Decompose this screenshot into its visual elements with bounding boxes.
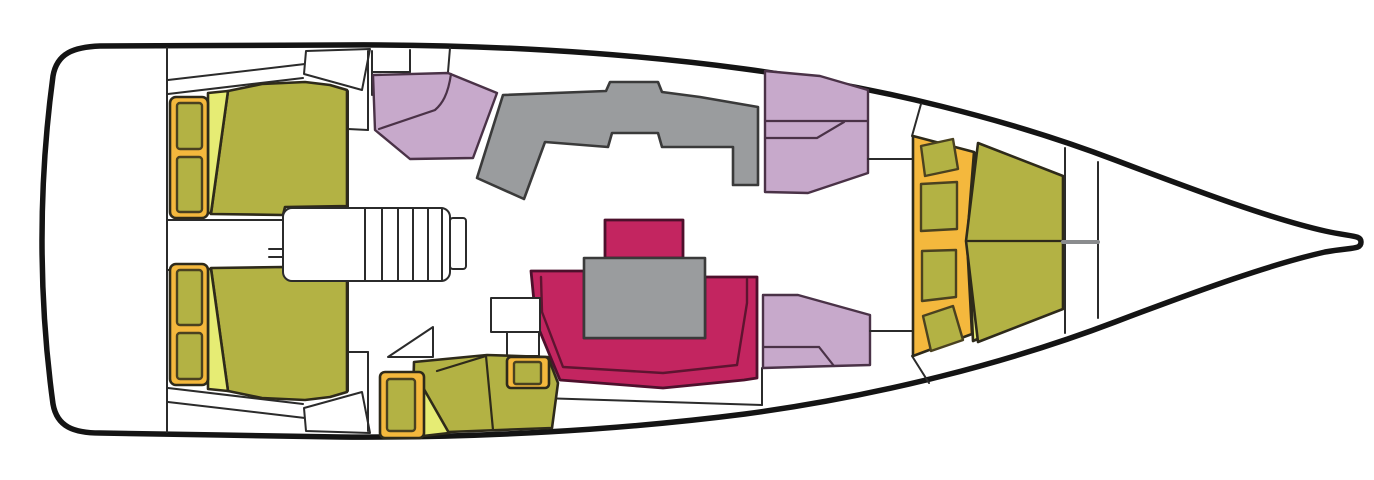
nav-seat-panel <box>514 362 541 384</box>
floorplan-svg <box>0 0 1374 480</box>
boat-floorplan <box>0 0 1374 480</box>
pillow <box>177 333 202 379</box>
settee-backrest <box>605 220 683 258</box>
aft-cabin-starboard <box>170 264 347 400</box>
pillow <box>921 182 957 231</box>
saloon-table <box>584 258 705 338</box>
nav-panel <box>387 379 415 431</box>
engine-box <box>283 208 450 281</box>
pillow <box>177 103 202 149</box>
wardrobe-line <box>348 129 368 130</box>
pillow <box>177 270 202 325</box>
vberth <box>966 143 1063 342</box>
aft-cabin-port-berth <box>211 82 347 215</box>
chart-table-extension <box>507 332 539 356</box>
pillow <box>921 139 958 176</box>
seat-cushion <box>765 71 868 193</box>
pillow <box>177 157 202 212</box>
companionway <box>283 208 466 281</box>
step-landing <box>450 218 466 269</box>
aft-cabin-port <box>170 82 347 218</box>
chart-table <box>491 298 540 332</box>
seat-fwd-port <box>765 71 868 193</box>
pillow <box>922 250 956 301</box>
aft-cabin-starboard-berth <box>211 267 347 400</box>
